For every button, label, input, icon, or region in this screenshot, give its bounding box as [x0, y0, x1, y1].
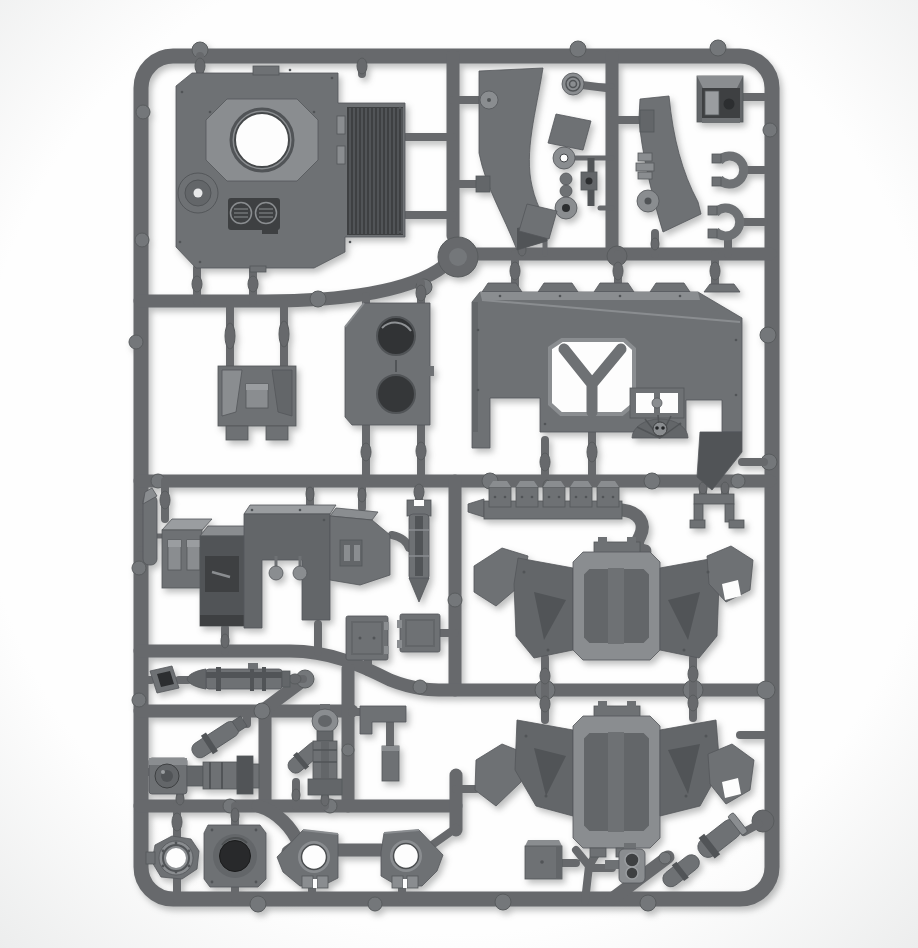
part-bore-block — [204, 825, 266, 887]
sprue — [129, 40, 777, 912]
headlight-lens-2 — [626, 867, 638, 879]
rear-plate-top-bevel — [480, 292, 700, 300]
roof-vent-slot — [262, 226, 278, 234]
piston-base — [308, 779, 342, 795]
port-hole-bottom — [377, 375, 415, 413]
part-twin-port-plate — [345, 303, 434, 425]
cupola-socket — [724, 99, 735, 110]
headlight-lens-1 — [625, 853, 639, 867]
part-stowage-box — [525, 840, 562, 879]
blade-emblem — [636, 153, 654, 179]
crew-hatch-center — [194, 189, 203, 198]
mount-ring-hole-1 — [302, 845, 327, 870]
blade-lug — [476, 176, 490, 192]
part-cupola-box — [697, 76, 743, 123]
grille-handle-1 — [337, 116, 345, 134]
part-hatch-door-1 — [346, 616, 389, 660]
roof-bottom-tab — [250, 266, 266, 272]
link-plate-1 — [548, 114, 591, 150]
vision-port-left — [636, 393, 654, 413]
part-periscope-block — [143, 488, 157, 565]
turret-ring-hole — [235, 113, 289, 167]
part-track-link-strip — [468, 481, 622, 519]
sprue-photo-svg: Grey plastic model kit sprue — studio pr… — [0, 0, 918, 948]
l-bracket-plate — [382, 746, 399, 781]
shell-top-face — [244, 505, 336, 514]
bracket-foot-right — [266, 426, 288, 440]
part-hatch-door-2 — [397, 614, 440, 652]
product-photo: Grey plastic model kit sprue — studio pr… — [0, 0, 918, 948]
grille-handle-2 — [337, 146, 345, 164]
bracket-foot-left — [226, 426, 248, 440]
searchlight-barrel — [203, 762, 237, 789]
ring-collar-hole — [166, 848, 186, 868]
roof-top-tab — [253, 66, 279, 75]
vision-port-boss — [652, 398, 662, 408]
junction-disc-center — [449, 248, 467, 266]
blade-tab — [640, 110, 654, 132]
cupola-door — [705, 91, 719, 115]
torpedo-tail — [282, 671, 290, 687]
bore-hole — [220, 841, 251, 872]
vision-port-right — [660, 393, 678, 413]
cupola-top-face — [697, 76, 743, 88]
track-links — [489, 481, 619, 507]
mount-ring-hole-2 — [394, 844, 419, 869]
barrel-collar — [237, 756, 253, 794]
